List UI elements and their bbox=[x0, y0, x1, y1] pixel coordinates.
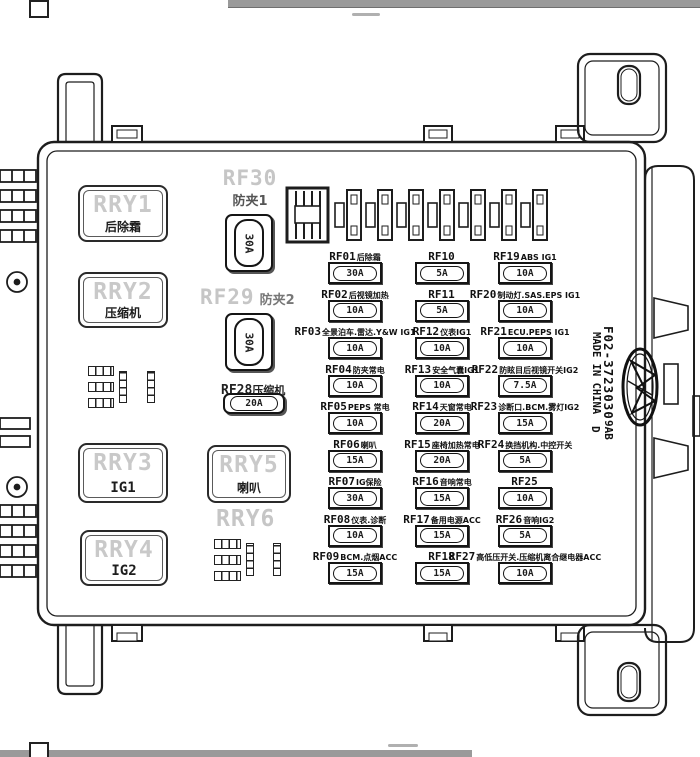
fuse-id: RF22 bbox=[472, 363, 499, 376]
fuse-body: 10A bbox=[498, 562, 552, 584]
fuse-pill: 10A bbox=[503, 341, 547, 356]
fuse-row: RF26音响IG2 5A bbox=[375, 511, 675, 548]
relay-id: RRY2 bbox=[80, 279, 166, 305]
top-crop-bar bbox=[228, 0, 700, 8]
terminal-bar bbox=[88, 382, 114, 392]
fusebox-diagram: RRY1 后除霜 RRY2 压缩机 RRY3 IG1 RRY4 IG2 RRY5… bbox=[0, 0, 700, 757]
relay-label: 后除霜 bbox=[80, 218, 166, 235]
fuse-amp: 10A bbox=[516, 305, 533, 316]
fuse-body: 15A bbox=[498, 412, 552, 434]
maxi-fuse-rf30-label: RF30 防夹1 bbox=[198, 166, 302, 209]
fuse-pill: 10A bbox=[503, 491, 547, 506]
fuse-row: RF27高低压开关.压缩机离合继电器ACC 10A bbox=[375, 548, 675, 585]
fuse-amp: 10A bbox=[516, 343, 533, 354]
fuse-body: 10A bbox=[498, 487, 552, 509]
watermark-bottom bbox=[388, 744, 418, 747]
fuse-label: RF19ABS IG1 bbox=[493, 248, 556, 262]
fuse-function: 音响IG2 bbox=[523, 516, 554, 525]
fuse-label: RF26音响IG2 bbox=[496, 511, 555, 525]
fuse-label: RF25 bbox=[511, 473, 539, 487]
relay-rry4: RRY4 IG2 bbox=[80, 530, 168, 586]
fuse-id: RF23 bbox=[471, 400, 498, 413]
terminal-bar bbox=[88, 398, 114, 408]
bottom-crop-bar bbox=[0, 750, 472, 757]
fuse-pill: 10A bbox=[503, 566, 547, 581]
relay-id: RRY4 bbox=[82, 537, 166, 563]
relay-label: IG1 bbox=[80, 480, 166, 496]
fuse-function: 高低压开关.压缩机离合继电器ACC bbox=[476, 553, 601, 562]
fuse-row: RF25 10A bbox=[375, 473, 675, 510]
fuse-amp: 7.5A bbox=[514, 380, 537, 391]
fuse-row: RF21ECU.PEPS IG1 10A bbox=[375, 323, 675, 360]
relay-label: 压缩机 bbox=[80, 304, 166, 321]
top-slot-strip bbox=[287, 188, 547, 242]
fuse-amp: 5A bbox=[519, 530, 530, 541]
fuse-row: RF19ABS IG1 10A bbox=[375, 248, 675, 285]
fuse-label: RF21ECU.PEPS IG1 bbox=[480, 323, 569, 337]
fuse-function: ECU.PEPS IG1 bbox=[508, 328, 570, 337]
fuse-pill: 5A bbox=[503, 528, 547, 543]
left-connectors bbox=[0, 170, 36, 577]
fuse-id: RF30 bbox=[223, 166, 278, 190]
fuse-row: RF22防眩目后视镜开关IG2 7.5A bbox=[375, 361, 675, 398]
fuse-label: RF24换挡机构.中控开关 bbox=[478, 436, 573, 450]
relay-id: RRY1 bbox=[80, 192, 166, 218]
fuse-id: RF27 bbox=[449, 550, 476, 563]
fuse-body: 5A bbox=[498, 525, 552, 547]
fuse-body: 5A bbox=[498, 450, 552, 472]
top-left-box bbox=[29, 0, 49, 18]
made-in-text: MADE IN CHINA bbox=[590, 332, 602, 414]
terminal-bar bbox=[147, 371, 155, 403]
terminal-bar bbox=[88, 366, 114, 376]
fuse-row: RF20制动灯.SAS.EPS IG1 10A bbox=[375, 286, 675, 323]
fuse-amp: 10A bbox=[516, 568, 533, 579]
fuse-function: 换挡机构.中控开关 bbox=[505, 441, 572, 450]
fuse-pill: 7.5A bbox=[503, 378, 547, 393]
fuse-pill: 10A bbox=[503, 303, 547, 318]
fuse-label: RF20制动灯.SAS.EPS IG1 bbox=[470, 286, 580, 300]
relay-id: RRY3 bbox=[80, 450, 166, 476]
fuse-function: 防眩目后视镜开关IG2 bbox=[499, 366, 578, 375]
fuse-pill: 15A bbox=[503, 416, 547, 431]
bottom-left-box bbox=[29, 742, 49, 757]
watermark-top bbox=[352, 13, 380, 16]
fuse-function: 防夹1 bbox=[232, 194, 267, 209]
relay-rry3: RRY3 IG1 bbox=[78, 443, 168, 503]
relay-rry1: RRY1 后除霜 bbox=[78, 185, 168, 242]
fuse-pill: 5A bbox=[503, 453, 547, 468]
fuse-pill: 10A bbox=[503, 266, 547, 281]
fuse-label: RF23诊断口.BCM.雾灯IG2 bbox=[471, 398, 580, 412]
code-d: D bbox=[589, 426, 602, 433]
fuse-amp: 10A bbox=[516, 268, 533, 279]
code-9ab: 9AB bbox=[602, 420, 615, 440]
fuse-function: ABS IG1 bbox=[521, 253, 557, 262]
fuse-body: 10A bbox=[498, 262, 552, 284]
terminal-bar bbox=[119, 371, 127, 403]
fuse-function: 诊断口.BCM.雾灯IG2 bbox=[498, 403, 579, 412]
fuse-row: RF24换挡机构.中控开关 5A bbox=[375, 436, 675, 473]
fuse-body: 10A bbox=[498, 337, 552, 359]
fuse-column-3: RF19ABS IG1 10A RF20制动灯.SAS.EPS IG1 10A … bbox=[375, 248, 675, 593]
fuse-amp: 10A bbox=[516, 493, 533, 504]
fuse-row: RF23诊断口.BCM.雾灯IG2 15A bbox=[375, 398, 675, 435]
relay-label: IG2 bbox=[82, 563, 166, 579]
fuse-label: RF22防眩目后视镜开关IG2 bbox=[472, 361, 579, 375]
fuse-id: RF20 bbox=[470, 288, 497, 301]
fuse-amp: 15A bbox=[516, 418, 533, 429]
fuse-function: 制动灯.SAS.EPS IG1 bbox=[497, 291, 580, 300]
fuse-body: 10A bbox=[498, 300, 552, 322]
fuse-amp: 5A bbox=[519, 455, 530, 466]
part-number: F02-3723030 bbox=[601, 326, 616, 420]
relay-rry2: RRY2 压缩机 bbox=[78, 272, 168, 328]
fuse-label: RF27高低压开关.压缩机离合继电器ACC bbox=[449, 548, 601, 562]
fuse-body: 7.5A bbox=[498, 375, 552, 397]
